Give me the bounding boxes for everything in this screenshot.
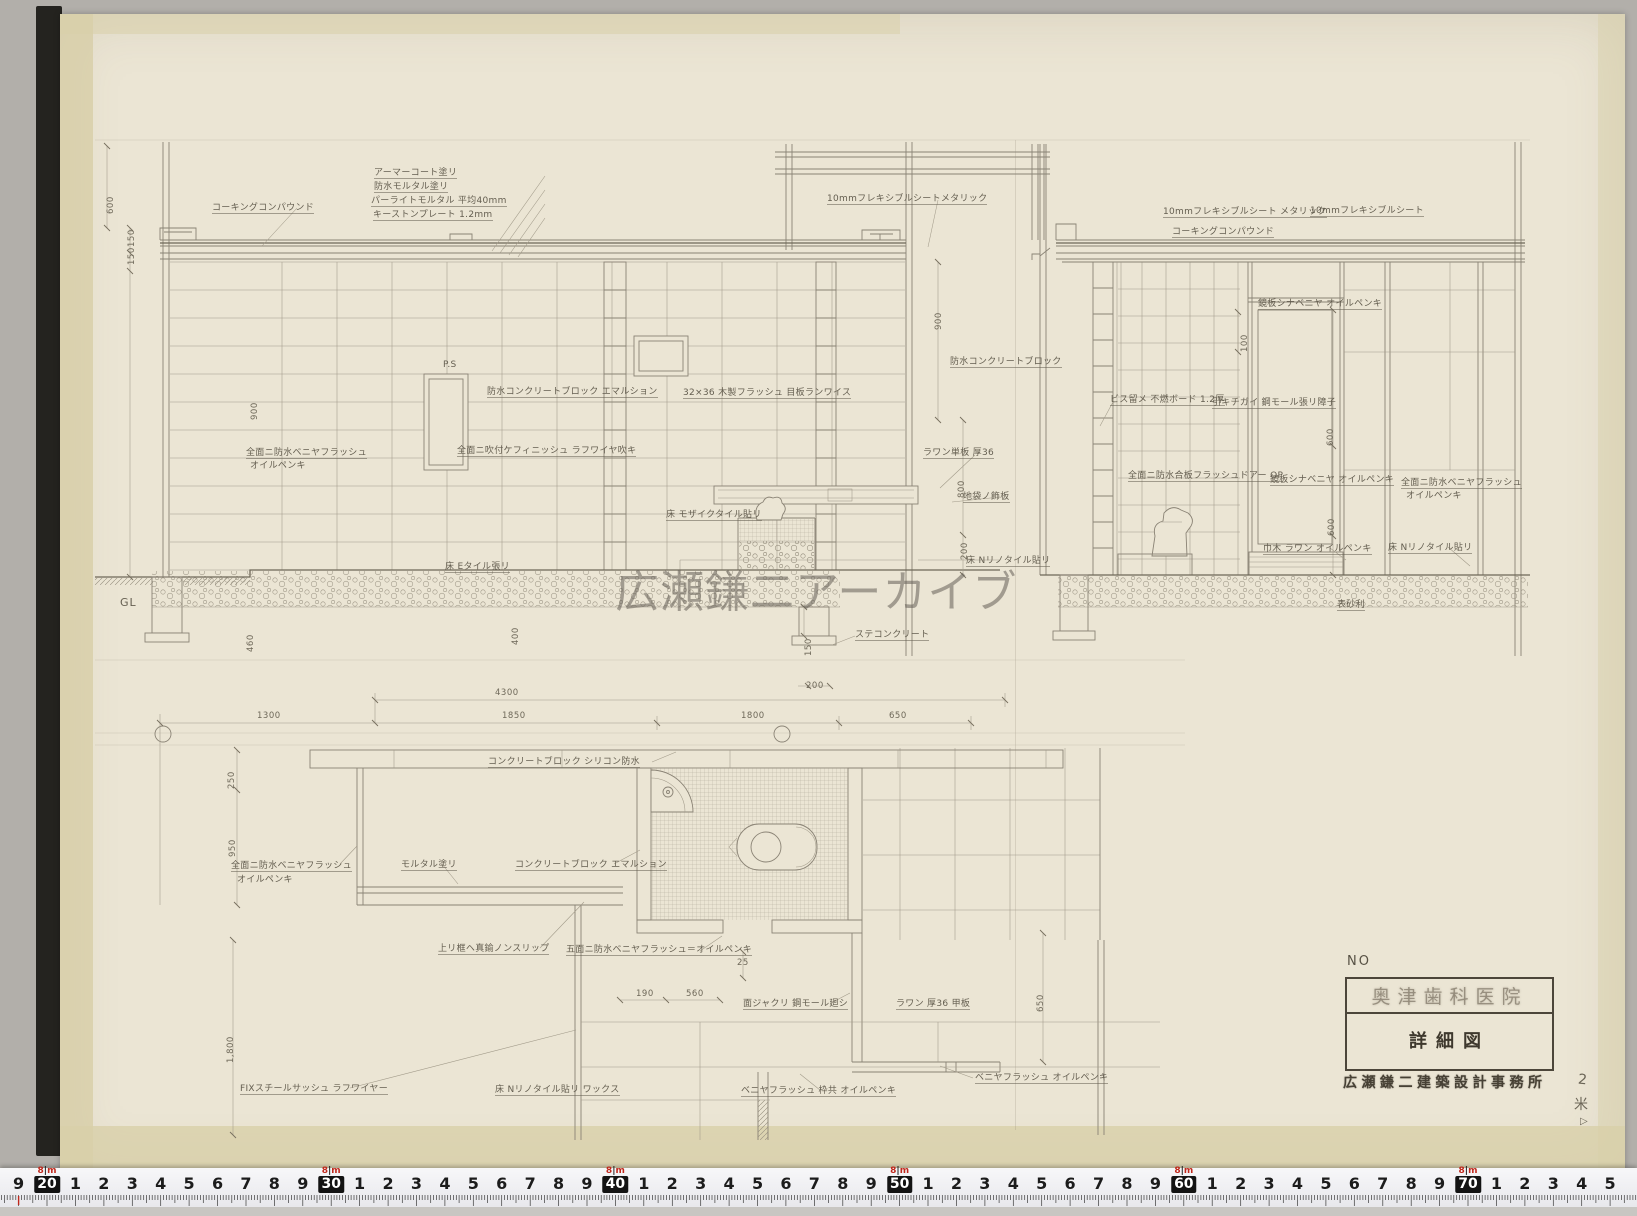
dimension-text: 1850 (502, 711, 526, 721)
annotation-label: オイルペンキ (1406, 491, 1462, 501)
annotation-label: 防水コンクリートブロック エマルション (487, 387, 658, 398)
annotation-label: FIXスチールサッシュ ラフワイヤー (240, 1084, 388, 1095)
annotation-label: ラワン 厚36 甲板 (896, 999, 970, 1010)
ruler-ticks (0, 1168, 1637, 1207)
annotation-label: 防水モルタル塗リ (374, 182, 448, 193)
annotation-label: アーマーコート塗リ (374, 168, 457, 179)
scan-background-bottom (0, 1207, 1637, 1216)
dimension-text: 950 (228, 839, 238, 857)
dimension-text: 200 (806, 681, 824, 691)
annotation-label: 地袋ノ飾板 (963, 492, 1010, 503)
dimension-text: 1300 (257, 711, 281, 721)
annotation-label: 32×36 木製フラッシュ 目板ランワイス (683, 388, 851, 399)
annotation-label: 表砂利 (1337, 600, 1365, 611)
drawing-title: 詳細図 (1409, 1027, 1490, 1053)
annotation-label: コンクリートブロック エマルション (515, 860, 667, 871)
annotation-label: コーキングコンパウンド (212, 203, 314, 214)
dimension-lines (104, 143, 1336, 1138)
annotation-label: P.S (443, 360, 457, 370)
annotation-label: 引キチガイ 鋼モール張リ障子 (1212, 398, 1336, 409)
annotation-label: 全面ニ吹付ケフィニッシュ ラフワイヤ吹キ (457, 446, 636, 457)
dimension-text: 900 (934, 312, 944, 330)
annotation-label: 面ジャクリ 鋼モール廻シ (743, 999, 848, 1010)
title-block: 奥津歯科医院 詳細図 (1345, 977, 1554, 1071)
annotation-label: オイルペンキ (250, 461, 306, 471)
dimension-text: 800 (957, 480, 967, 498)
dimension-text: 400 (511, 627, 521, 645)
annotation-label: オイルペンキ (237, 875, 293, 885)
dimension-text: 250 (227, 771, 237, 789)
dimension-text: 460 (246, 634, 256, 652)
dimension-text: 600 (106, 196, 116, 214)
dimension-text: 100 (1240, 334, 1250, 352)
annotation-label: ビス留メ 不燃ボード 1.2厚 (1110, 395, 1225, 406)
annotation-label: 防水コンクリートブロック (950, 357, 1062, 368)
annotation-label: 床 Nリノタイル貼リ ワックス (495, 1085, 620, 1096)
annotation-label: 床 Eタイル張リ (445, 562, 510, 573)
annotation-label: 全面ニ防水ベニヤフラッシュ (231, 861, 352, 872)
annotation-label: ベニヤフラッシュ オイルペンキ (975, 1073, 1108, 1084)
project-name-stamp: 奥津歯科医院 (1371, 982, 1527, 1009)
scanned-drawing-sheet: コーキングコンパウンドアーマーコート塗リ防水モルタル塗リパーライトモルタル 平均… (0, 0, 1637, 1216)
dimension-text: 1800 (741, 711, 765, 721)
annotation-label: キーストンプレート 1.2mm (373, 210, 493, 221)
annotation-label: ステコンクリート (855, 630, 929, 641)
annotation-label: 10mmフレキシブルシート (1310, 206, 1424, 217)
annotation-label: ベニヤフラッシュ 枠共 オイルペンキ (741, 1086, 896, 1097)
annotation-label: 10mmフレキシブルシート メタリック (1163, 207, 1327, 218)
sheet-number-mark: 2 (1577, 1072, 1588, 1089)
annotation-label: 全面ニ防水ベニヤフラッシュ (246, 448, 367, 459)
measuring-tape-ruler: 9208|m123456789308|m123456789408|m123456… (0, 1168, 1637, 1207)
dimension-text: 560 (686, 989, 704, 999)
sheet-no-label: NO (1347, 954, 1371, 969)
annotation-label: 床 モザイクタイル貼リ (666, 510, 762, 521)
dimension-text: 600 (1326, 428, 1336, 446)
annotation-label: パーライトモルタル 平均40mm (371, 196, 507, 207)
annotation-label: 上リ框ヘ真鍮ノンスリップ (438, 944, 549, 955)
dimension-text: 150 (804, 638, 814, 656)
annotation-label: モルタル塗リ (401, 860, 457, 871)
annotation-label: 全面ニ防水ベニヤフラッシュ (1401, 478, 1522, 489)
annotation-label: 五面ニ防水ベニヤフラッシュ＝オイルペンキ (566, 945, 752, 956)
annotation-label: 床 Nリノタイル貼リ (1388, 543, 1472, 554)
dimension-text: 190 (636, 989, 654, 999)
dimension-text: 1,800 (226, 1036, 236, 1063)
annotation-label: 鏡板シナベニヤ オイルペンキ (1270, 475, 1394, 486)
annotation-label: コンクリートブロック シリコン防水 (488, 757, 640, 768)
check-mark: 米 (1574, 1094, 1588, 1114)
office-name-stamp: 広瀬鎌二建築設計事務所 (1343, 1072, 1558, 1092)
annotation-label: 巾木 ラワン オイルペンキ (1263, 544, 1372, 555)
annotation-label: 10mmフレキシブルシートメタリック (827, 194, 987, 205)
dimension-text: 650 (889, 711, 907, 721)
dimension-text: 25 (737, 958, 749, 968)
dimension-text: 4300 (495, 688, 519, 698)
annotation-label: コーキングコンパウンド (1172, 227, 1274, 238)
flag-mark: ▷ (1580, 1116, 1588, 1127)
annotation-label: GL (120, 598, 137, 608)
annotation-label: 鏡板シナベニヤ オイルペンキ (1258, 299, 1382, 310)
dimension-text: 600 (1327, 518, 1337, 536)
dimension-text: 900 (250, 402, 260, 420)
dimension-text: 650 (1036, 994, 1046, 1012)
dimension-text: 150 (127, 229, 137, 247)
annotation-label: ラワン単板 厚36 (923, 448, 994, 459)
annotation-label: 全面ニ防水合板フラッシュドアー OP (1128, 471, 1283, 482)
dimension-text: 150 (127, 247, 137, 265)
archive-watermark: 広瀬鎌二アーカイブ (615, 556, 1017, 620)
